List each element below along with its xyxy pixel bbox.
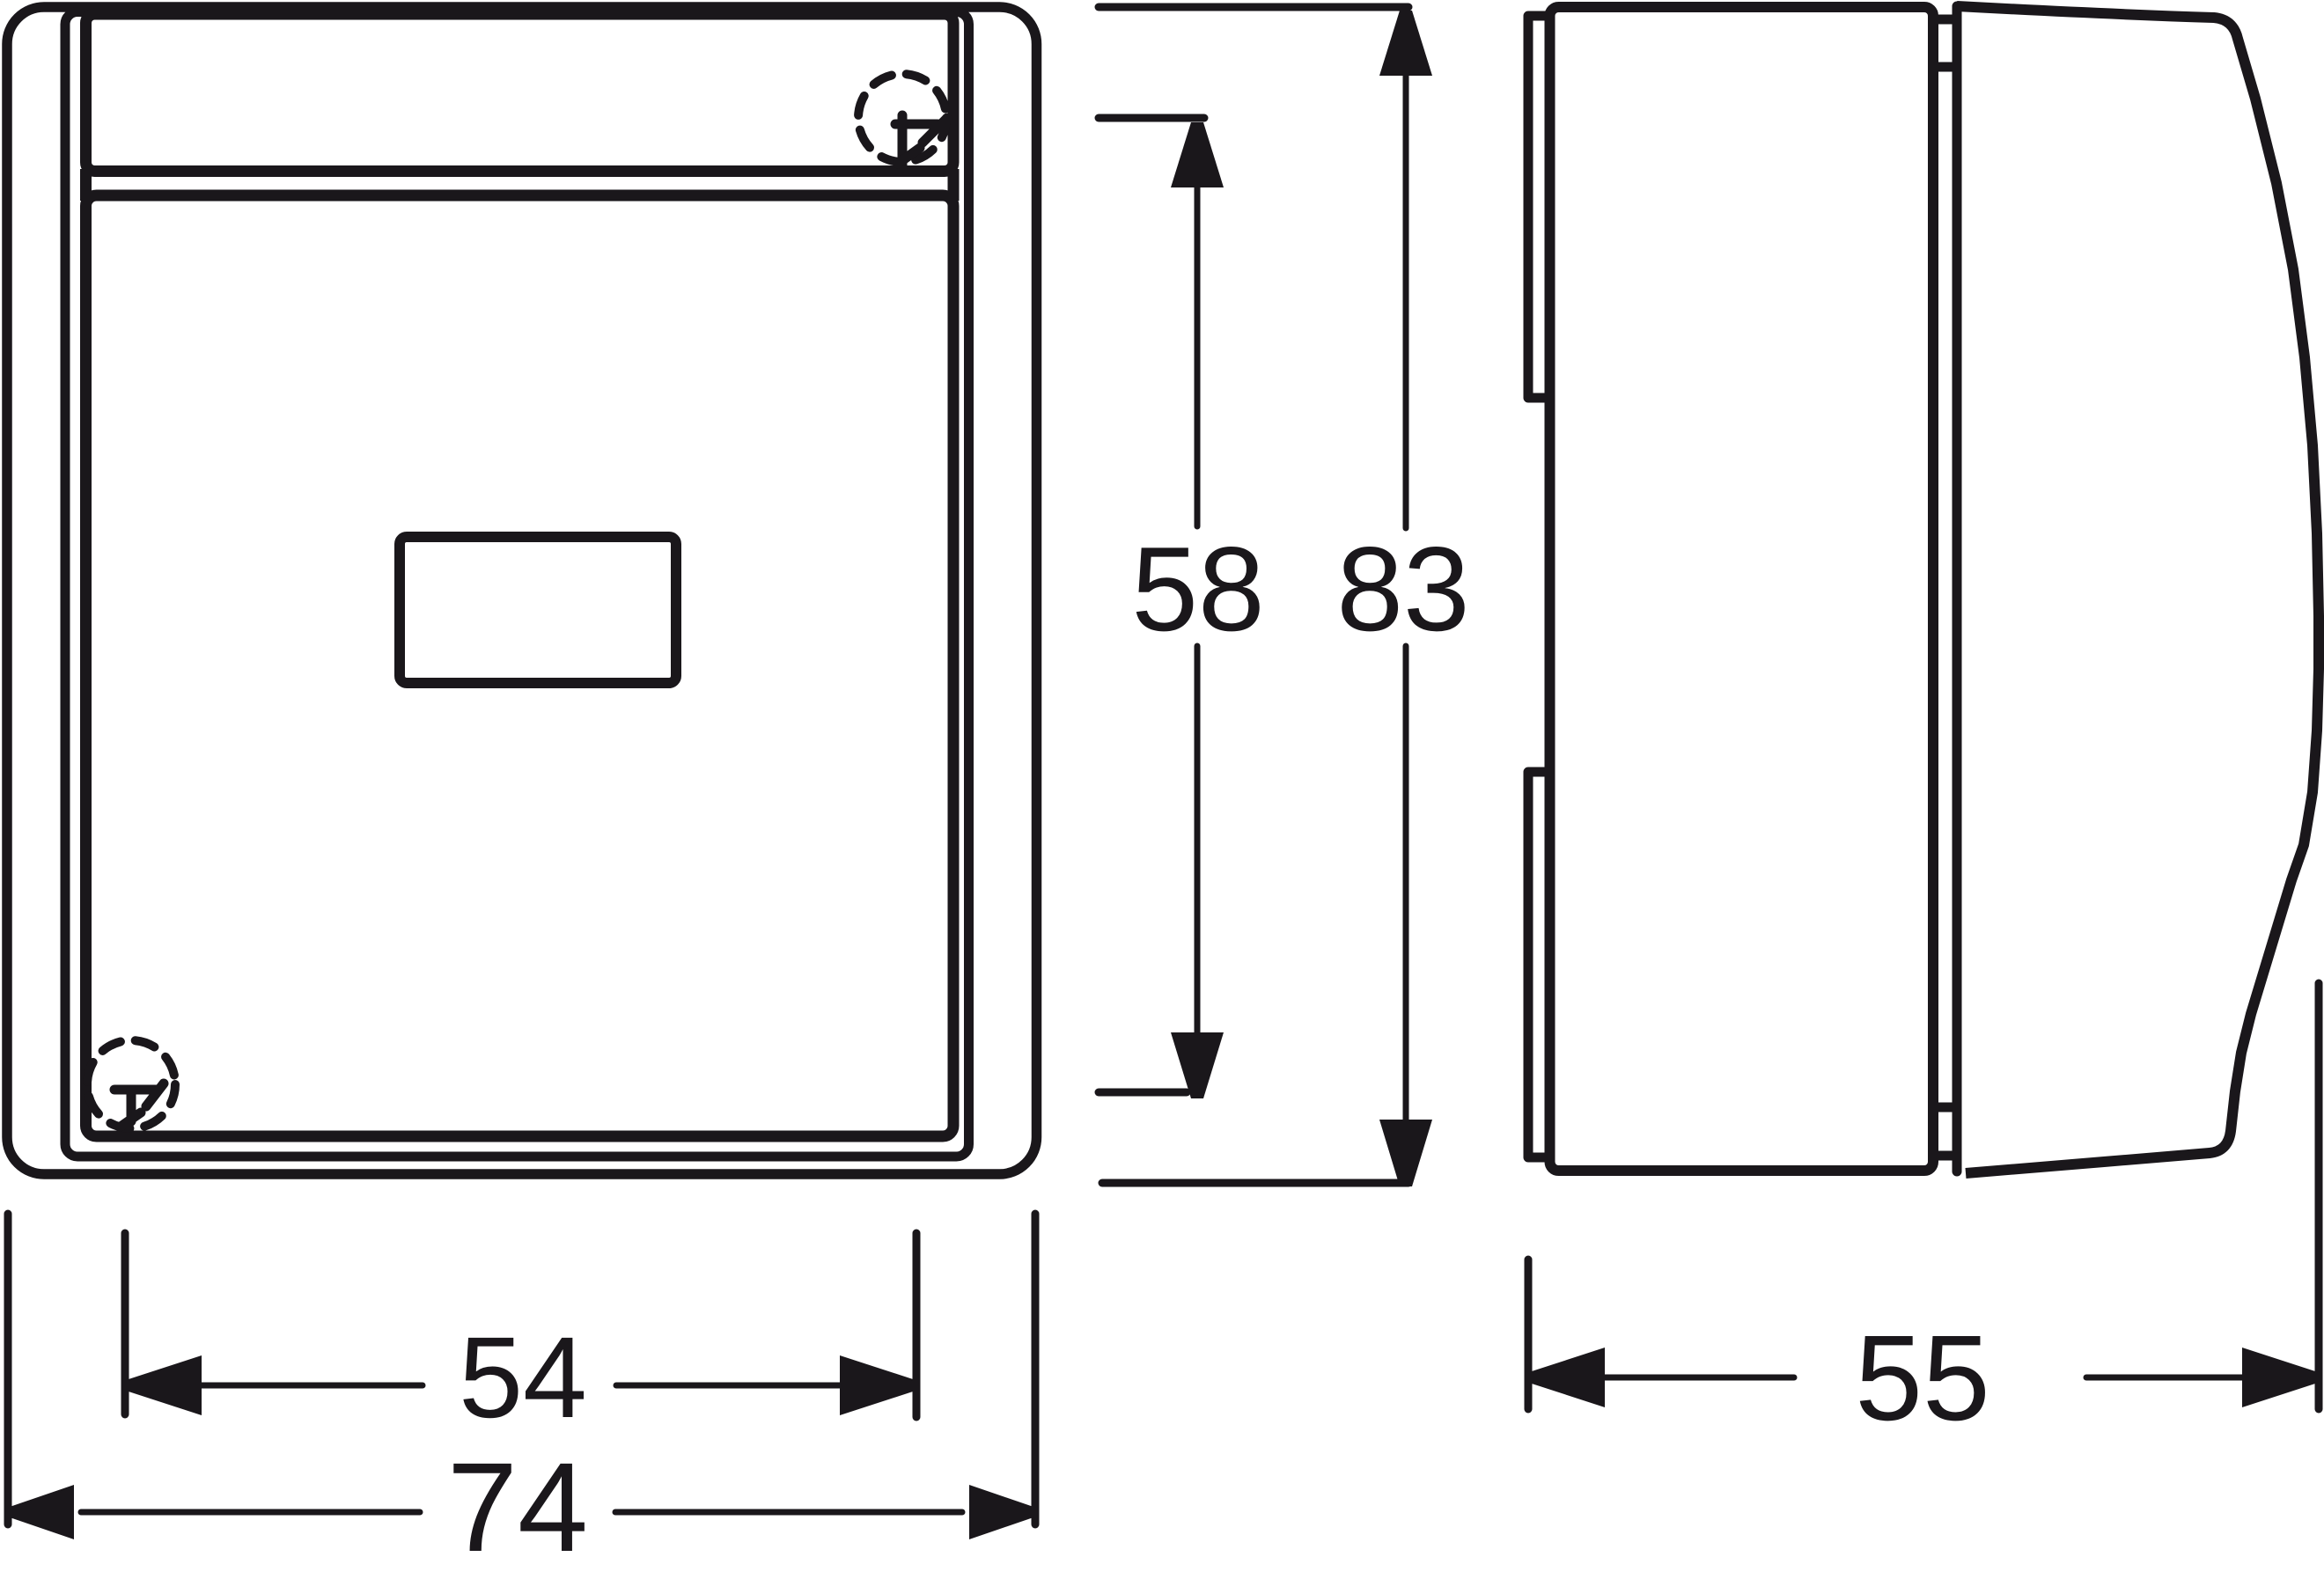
svg-text:54: 54 <box>459 1312 587 1442</box>
svg-text:83: 83 <box>1336 522 1469 656</box>
svg-text:58: 58 <box>1131 522 1264 656</box>
svg-text:74: 74 <box>447 1436 588 1578</box>
svg-text:55: 55 <box>1855 1311 1990 1446</box>
